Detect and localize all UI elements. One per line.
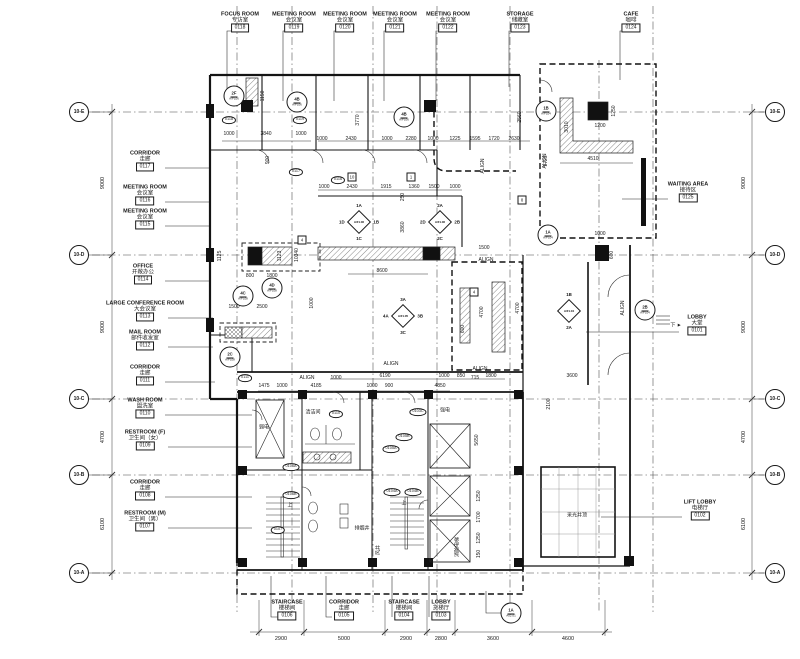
dim-label: 4850 [434, 383, 445, 389]
plan-text: ALIGN [478, 257, 493, 263]
room-callout-0122: MEETING ROOM会议室0122 [426, 11, 470, 32]
marker-view-right: 2B [454, 220, 460, 225]
dim-label: 2430 [345, 136, 356, 142]
dim-label: 2630 [508, 136, 519, 142]
room-callout-0125: WAITING AREA接待区0125 [668, 181, 708, 202]
dim-label: 1595 [469, 136, 480, 142]
dim-label: 1000 [449, 184, 460, 190]
edge-dim-label: 9000 [100, 177, 106, 189]
room-number: 0116 [136, 197, 155, 206]
room-number: 0110 [136, 410, 155, 419]
plan-text: ALIGN [542, 153, 548, 168]
dim-label: 1915 [380, 184, 391, 190]
dim-label: 1000 [223, 131, 234, 137]
dim-label: 2560 [517, 111, 523, 122]
dim-label: 600 [460, 325, 466, 333]
dim-label: 800 [246, 273, 254, 279]
dim-label: 1125 [217, 251, 223, 262]
plan-text: 风井 [375, 545, 382, 555]
room-callout-0112: MAIL ROOM邮件收发室0112 [129, 329, 161, 350]
dim-label: 6190 [379, 373, 390, 379]
grid-bubble-10-D: 10-D [765, 245, 785, 265]
dim-label: 3860 [400, 221, 406, 232]
plan-text: 消防电梯 [454, 537, 461, 557]
marker-view-bottom: 2A [566, 325, 572, 330]
dim-label: 1250 [476, 490, 482, 501]
detail-tag: 0106B [283, 491, 300, 499]
dim-label: 1000 [438, 373, 449, 379]
dim-label: 1150 [260, 91, 266, 102]
grid-bubble-10-A: 10-A [765, 563, 785, 583]
grid-bubble-10-E: 10-E [69, 102, 89, 122]
room-number: 0102 [690, 512, 709, 521]
marker-sheet-code: A/FL04 [564, 309, 574, 313]
detail-tag: 0104A [384, 488, 401, 496]
edge-dim-label: 9000 [741, 177, 747, 189]
plan-text: 强电 [440, 407, 450, 414]
grid-bubble-10-A: 10-A [69, 563, 89, 583]
room-callout-0114: OFFICE开敞办公0114 [132, 263, 154, 284]
elevation-marker-circle: 4CA/FL08 [233, 286, 254, 307]
dim-label: 3600 [566, 373, 577, 379]
elevation-marker-diamond: A/FL041B2A [549, 291, 589, 331]
room-number: 0121 [385, 24, 404, 33]
plan-text: 下 ► [670, 322, 681, 329]
room-number: 0117 [136, 163, 155, 172]
plan-text: 采光井顶 [567, 512, 587, 519]
marker-view-top: 1A [356, 203, 362, 208]
plan-text: 清洁间 [305, 409, 320, 416]
room-number: 0115 [136, 221, 155, 230]
elevation-marker-circle: 2CA/FL08 [220, 347, 241, 368]
room-callout-0113: LARGE CONFERENCE ROOM大会议室0113 [106, 300, 184, 321]
edge-dim-label: 4700 [100, 431, 106, 443]
marker-view-bottom: 3C [400, 330, 406, 335]
bottom-dim-label: 3600 [487, 636, 499, 642]
marker-sheet-code: A/FL04 [541, 112, 551, 115]
elevation-marker-circle: 2BA/FL04 [635, 300, 656, 321]
marker-sheet-code: A/FL06 [435, 220, 445, 224]
dim-label: 3770 [355, 114, 361, 125]
keynote-square: 4 [470, 288, 479, 297]
room-number: 0122 [438, 24, 457, 33]
room-callout-0108: CORRIDOR走廊0108 [130, 479, 160, 500]
dim-label: 2500 [256, 304, 267, 310]
plan-text: 上 [287, 502, 292, 509]
room-callout-0109: RESTROOM (F)卫生间（女）0109 [125, 429, 165, 450]
room-callout-0120: MEETING ROOM会议室0120 [323, 11, 367, 32]
dim-label: 2280 [405, 136, 416, 142]
marker-sheet-code: A02.01 [506, 614, 516, 617]
room-number: 0111 [136, 377, 154, 386]
dim-label: 600 [609, 251, 615, 259]
room-callout-0119: MEETING ROOM会议室0119 [272, 11, 316, 32]
marker-sheet-code: A/FL08 [225, 358, 235, 361]
dim-label: 4700 [515, 302, 521, 313]
plan-text: ALIGN [299, 375, 314, 381]
detail-tag: 0118 [222, 116, 236, 124]
edge-dim-label: 9000 [741, 321, 747, 333]
edge-dim-label: 9000 [100, 321, 106, 333]
room-callout-0102: LIFT LOBBY电梯厅0102 [684, 499, 716, 520]
dim-label: 3840 [260, 131, 271, 137]
marker-view-left: 1D [339, 220, 345, 225]
detail-tag: 0107 [271, 526, 285, 534]
dim-label: 900 [385, 383, 393, 389]
marker-view-bottom: 1C [356, 236, 362, 241]
room-number: 0113 [136, 313, 155, 322]
elevation-marker-diamond: A/FL062A2C2D2B [420, 202, 460, 242]
room-number: 0101 [687, 327, 706, 336]
plan-text: ALIGN [472, 366, 487, 372]
detail-tag: 0103C [409, 408, 426, 416]
room-callout-0124: CAFE咖啡0124 [621, 11, 640, 32]
elevation-marker-circle: 1AA02.01 [501, 603, 522, 624]
room-callout-0116: MEETING ROOM会议室0116 [123, 184, 167, 205]
room-callout-0107: RESTROOM (M)卫生间（男）0107 [124, 510, 166, 531]
room-number: 0124 [621, 24, 640, 33]
room-number: 0120 [335, 24, 354, 33]
detail-tag: 0104B [405, 488, 422, 496]
grid-bubble-10-B: 10-B [69, 465, 89, 485]
grid-bubble-10-C: 10-C [69, 389, 89, 409]
marker-view-right: 1B [373, 220, 379, 225]
room-callout-0121: MEETING ROOM会议室0121 [373, 11, 417, 32]
dim-label: 1250 [476, 532, 482, 543]
dim-label: 150 [476, 550, 482, 558]
marker-view-top: 1B [566, 292, 572, 297]
marker-sheet-code: A/FL04 [640, 311, 650, 314]
bottom-dim-label: 2900 [275, 636, 287, 642]
room-number: 0123 [510, 24, 529, 33]
dim-label: 1800 [485, 373, 496, 379]
marker-sheet-code: A/FL04 [543, 236, 553, 239]
elevation-marker-circle: 4BA/FL06 [394, 107, 415, 128]
dim-label: 3010 [564, 121, 570, 132]
room-number: 0112 [136, 342, 155, 351]
dim-label: 2430 [346, 184, 357, 190]
plan-text: ALIGN [383, 361, 398, 367]
dim-label: 1000 [381, 136, 392, 142]
dim-label: 10340 [294, 248, 300, 262]
bottom-dim-label: 2900 [400, 636, 412, 642]
marker-view-top: 3A [400, 297, 406, 302]
detail-tag: 0117 [289, 168, 303, 176]
room-callout-0106: STAIRCASE楼梯间0106 [271, 599, 302, 620]
dim-label: 1200 [594, 123, 605, 129]
plan-text: ALIGN [620, 300, 626, 315]
marker-view-bottom: 2C [437, 236, 443, 241]
grid-bubble-10-C: 10-C [765, 389, 785, 409]
dim-label: 715 [471, 375, 479, 381]
dim-label: 4700 [479, 306, 485, 317]
dim-label: 1000 [295, 131, 306, 137]
elevation-marker-circle: 4DA/FL08 [262, 278, 283, 299]
room-number: 0104 [394, 612, 413, 621]
dim-label: 850 [457, 373, 465, 379]
edge-dim-label: 4700 [741, 431, 747, 443]
room-callout-0110: WASH ROOM盥洗室0110 [127, 397, 162, 418]
elevation-marker-circle: 1BA/FL04 [536, 101, 557, 122]
room-callout-0123: STORAGE储藏室0123 [506, 11, 533, 32]
grid-bubble-10-D: 10-D [69, 245, 89, 265]
marker-sheet-code: A/FL06 [354, 220, 364, 224]
dim-label: 8600 [376, 268, 387, 274]
plan-text: 排烟井 [354, 525, 369, 532]
room-number: 0119 [285, 24, 304, 33]
room-number: 0109 [135, 442, 154, 451]
dim-label: 1000 [366, 383, 377, 389]
dim-label: 1500 [478, 245, 489, 251]
dim-label: 1225 [449, 136, 460, 142]
marker-sheet-code: A/FL06 [399, 118, 409, 121]
detail-tag: 0119 [293, 116, 307, 124]
dim-label: 1000 [318, 184, 329, 190]
elevation-marker-diamond: A/FL053A3C4A3B [383, 296, 423, 336]
room-number: 0103 [431, 612, 450, 621]
elevation-marker-diamond: A/FL061A1C1D1B [339, 202, 379, 242]
detail-tag: 0106A [283, 463, 300, 471]
dim-label: 5650 [474, 434, 480, 445]
dim-label: 4510 [587, 156, 598, 162]
room-number: 0106 [277, 612, 296, 621]
plan-text: ALIGN [480, 158, 486, 173]
elevation-marker-circle: 4BA/FL06 [287, 92, 308, 113]
marker-sheet-code: A/FL06 [292, 103, 302, 106]
room-number: 0108 [135, 492, 154, 501]
keynote-square: 10 [348, 173, 357, 182]
dim-label: 1250 [611, 105, 617, 116]
marker-view-left: 2D [420, 220, 426, 225]
dim-label: 1700 [476, 511, 482, 522]
room-number: 0118 [231, 24, 250, 33]
elevation-marker-circle: 1AA/FL04 [538, 225, 559, 246]
keynote-square: 8 [518, 196, 527, 205]
elevation-marker-circle: 2FA/FL06 [224, 86, 245, 107]
dim-label: 4185 [310, 383, 321, 389]
dim-label: 1500 [428, 184, 439, 190]
dim-label: 1720 [488, 136, 499, 142]
keynote-square: 4 [298, 236, 307, 245]
room-callout-0111: CORRIDOR走廊0111 [130, 364, 160, 385]
room-callout-0104: STAIRCASE楼梯间0104 [388, 599, 419, 620]
room-number: 0125 [678, 194, 697, 203]
bottom-dim-label: 2800 [435, 636, 447, 642]
dim-label: 1123 [277, 251, 283, 262]
dim-label: 1000 [427, 136, 438, 142]
room-number: 0105 [334, 612, 353, 621]
room-callout-0118: FOCUS ROOM专访室0118 [221, 11, 259, 32]
edge-dim-label: 6100 [741, 518, 747, 530]
room-callout-0117: CORRIDOR走廊0117 [130, 150, 160, 171]
detail-tag: 0105A [383, 445, 400, 453]
room-callout-0103: LOBBY货梯厅0103 [431, 599, 450, 620]
plan-text: 弱电 [259, 424, 269, 431]
marker-view-right: 3B [417, 314, 423, 319]
dim-label: 1360 [408, 184, 419, 190]
floor-plan-canvas: FOCUS ROOM专访室0118MEETING ROOM会议室0119MEET… [0, 0, 800, 659]
dim-label: 1000 [330, 375, 341, 381]
dim-label: 1000 [594, 231, 605, 237]
marker-sheet-code: A/FL05 [398, 314, 408, 318]
room-callout-0101: LOBBY大堂0101 [687, 314, 706, 335]
marker-sheet-code: A/FL08 [238, 297, 248, 300]
plan-text: 上 [401, 500, 406, 507]
dim-label: 1475 [258, 383, 269, 389]
room-number: 0114 [134, 276, 153, 285]
detail-tag: 0111 [238, 374, 252, 382]
annotation-layer: FOCUS ROOM专访室0118MEETING ROOM会议室0119MEET… [0, 0, 800, 659]
room-number: 0107 [135, 523, 154, 532]
dim-label: 1000 [309, 297, 315, 308]
detail-tag: 0105B [396, 433, 413, 441]
keynote-square: 1 [407, 173, 416, 182]
dim-label: 1000 [276, 383, 287, 389]
grid-bubble-10-B: 10-B [765, 465, 785, 485]
room-callout-0115: MEETING ROOM会议室0115 [123, 208, 167, 229]
dim-label: 1000 [316, 136, 327, 142]
grid-bubble-10-E: 10-E [765, 102, 785, 122]
dim-label: 250 [400, 193, 406, 201]
marker-view-top: 2A [437, 203, 443, 208]
bottom-dim-label: 5000 [338, 636, 350, 642]
marker-sheet-code: A/FL08 [267, 289, 277, 292]
edge-dim-label: 6100 [100, 518, 106, 530]
detail-tag: 0116 [331, 176, 345, 184]
room-callout-0105: CORRIDOR走廊0105 [329, 599, 359, 620]
dim-label: 900 [265, 156, 271, 164]
bottom-dim-label: 4600 [562, 636, 574, 642]
detail-tag: 0110 [329, 410, 343, 418]
marker-sheet-code: A/FL06 [229, 97, 239, 100]
marker-view-left: 4A [383, 314, 389, 319]
dim-label: 2100 [546, 398, 552, 409]
